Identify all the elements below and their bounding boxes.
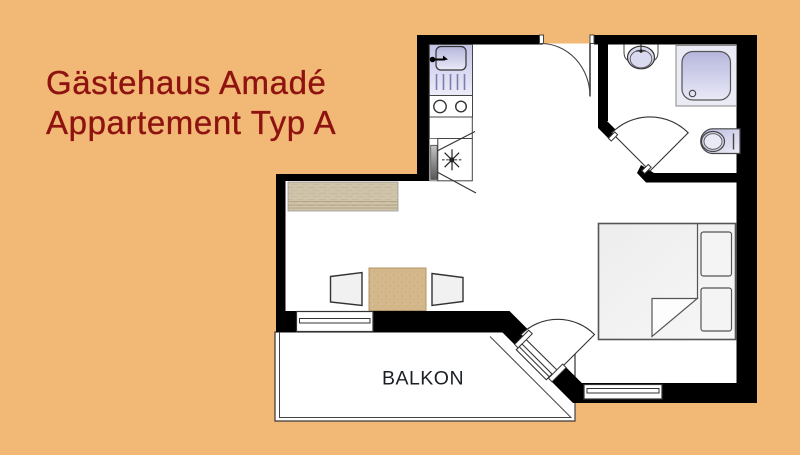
svg-text:Appartement Typ A: Appartement Typ A: [46, 104, 336, 141]
svg-text:Gästehaus Amadé: Gästehaus Amadé: [46, 64, 327, 101]
svg-text:BALKON: BALKON: [382, 368, 464, 390]
